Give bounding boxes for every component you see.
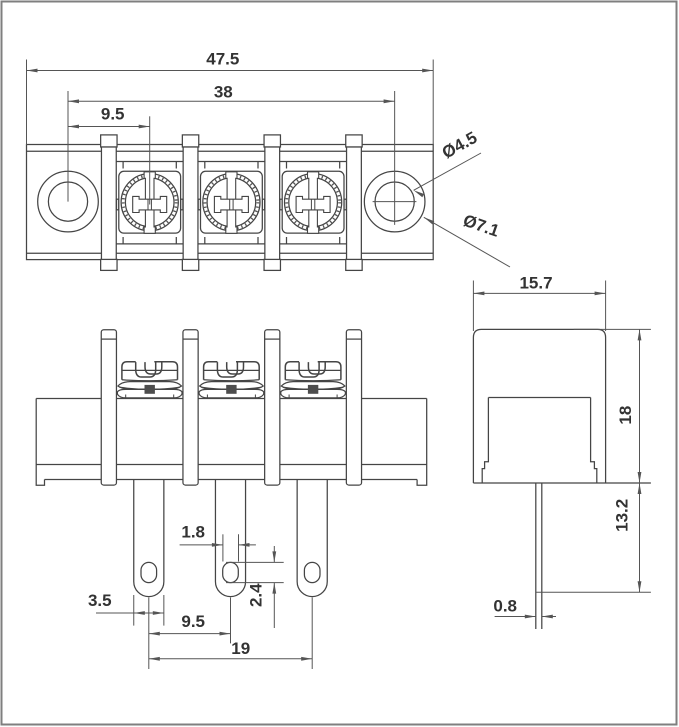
svg-text:2.4: 2.4: [247, 583, 266, 607]
svg-text:1.8: 1.8: [181, 523, 205, 542]
svg-text:3.5: 3.5: [88, 591, 112, 610]
svg-text:0.8: 0.8: [493, 597, 517, 616]
svg-text:9.5: 9.5: [101, 105, 125, 124]
svg-text:47.5: 47.5: [206, 50, 239, 69]
svg-text:15.7: 15.7: [519, 273, 552, 292]
svg-text:13.2: 13.2: [612, 499, 631, 532]
svg-text:9.5: 9.5: [181, 612, 205, 631]
svg-text:19: 19: [231, 639, 250, 658]
svg-text:38: 38: [214, 82, 233, 101]
svg-text:18: 18: [616, 406, 635, 425]
